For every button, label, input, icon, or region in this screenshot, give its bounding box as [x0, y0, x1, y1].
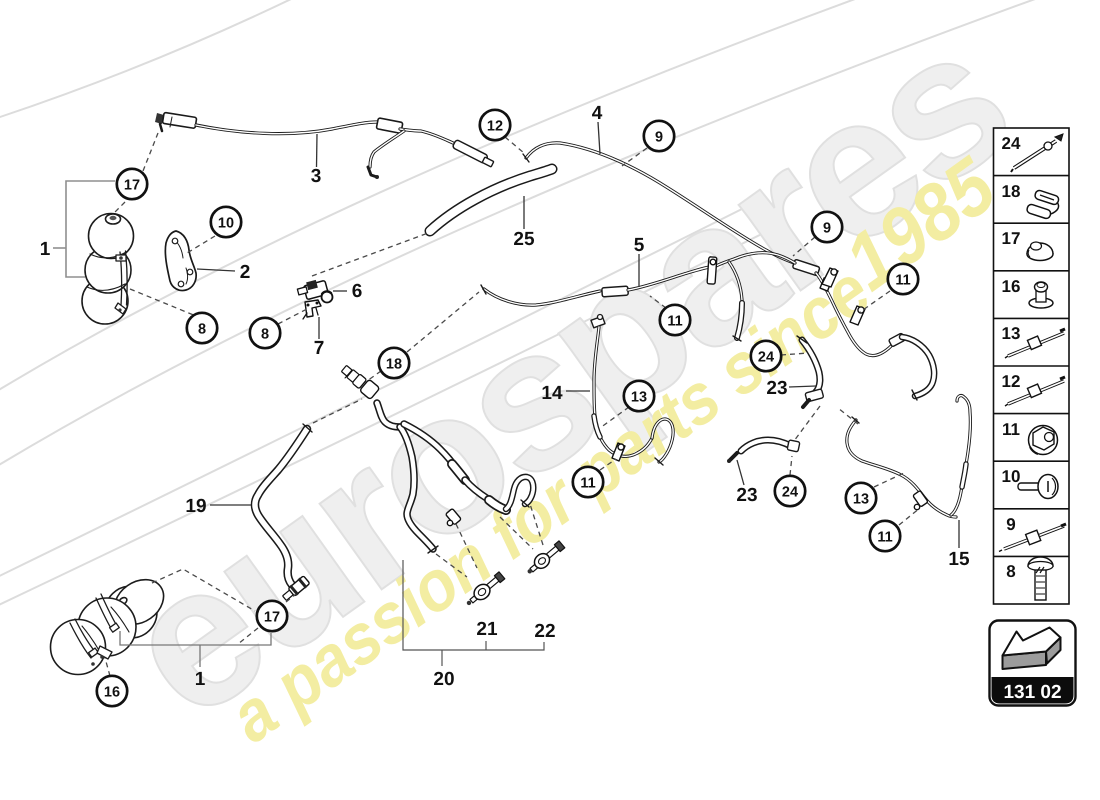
svg-text:23: 23 [736, 485, 757, 506]
svg-text:9: 9 [1006, 515, 1015, 534]
svg-text:20: 20 [433, 669, 454, 690]
svg-text:18: 18 [386, 357, 402, 373]
svg-text:5: 5 [634, 235, 645, 256]
svg-text:8: 8 [261, 327, 269, 343]
svg-text:16: 16 [1002, 277, 1021, 296]
svg-text:18: 18 [1002, 182, 1021, 201]
svg-text:1: 1 [40, 239, 51, 260]
svg-text:10: 10 [1002, 467, 1021, 486]
svg-text:1: 1 [195, 669, 206, 690]
svg-text:15: 15 [948, 549, 970, 570]
svg-text:9: 9 [655, 130, 663, 146]
svg-text:23: 23 [766, 378, 787, 399]
svg-text:11: 11 [580, 476, 595, 492]
svg-text:6: 6 [352, 281, 363, 302]
svg-text:16: 16 [104, 685, 120, 701]
svg-text:22: 22 [534, 621, 555, 642]
svg-text:8: 8 [1006, 562, 1015, 581]
svg-text:12: 12 [487, 119, 503, 135]
svg-text:21: 21 [476, 619, 498, 640]
svg-text:11: 11 [667, 314, 682, 330]
svg-text:19: 19 [185, 496, 206, 517]
svg-text:25: 25 [513, 229, 535, 250]
svg-text:17: 17 [264, 610, 280, 626]
svg-text:13: 13 [1002, 324, 1021, 343]
svg-text:10: 10 [218, 216, 234, 232]
svg-text:17: 17 [1002, 229, 1021, 248]
svg-text:11: 11 [895, 273, 910, 289]
svg-text:11: 11 [877, 530, 892, 546]
svg-text:4: 4 [592, 103, 603, 124]
svg-text:2: 2 [240, 262, 251, 283]
svg-text:13: 13 [631, 390, 647, 406]
svg-text:24: 24 [1002, 134, 1021, 153]
svg-text:24: 24 [782, 485, 798, 501]
svg-text:7: 7 [314, 338, 325, 359]
svg-text:17: 17 [124, 178, 140, 194]
svg-text:3: 3 [311, 166, 322, 187]
svg-text:24: 24 [758, 350, 774, 366]
svg-text:13: 13 [853, 492, 869, 508]
svg-text:8: 8 [198, 322, 206, 338]
svg-text:131 02: 131 02 [1003, 682, 1061, 703]
svg-text:9: 9 [823, 221, 831, 237]
svg-text:14: 14 [541, 383, 563, 404]
svg-text:11: 11 [1002, 420, 1020, 439]
svg-text:12: 12 [1002, 372, 1021, 391]
